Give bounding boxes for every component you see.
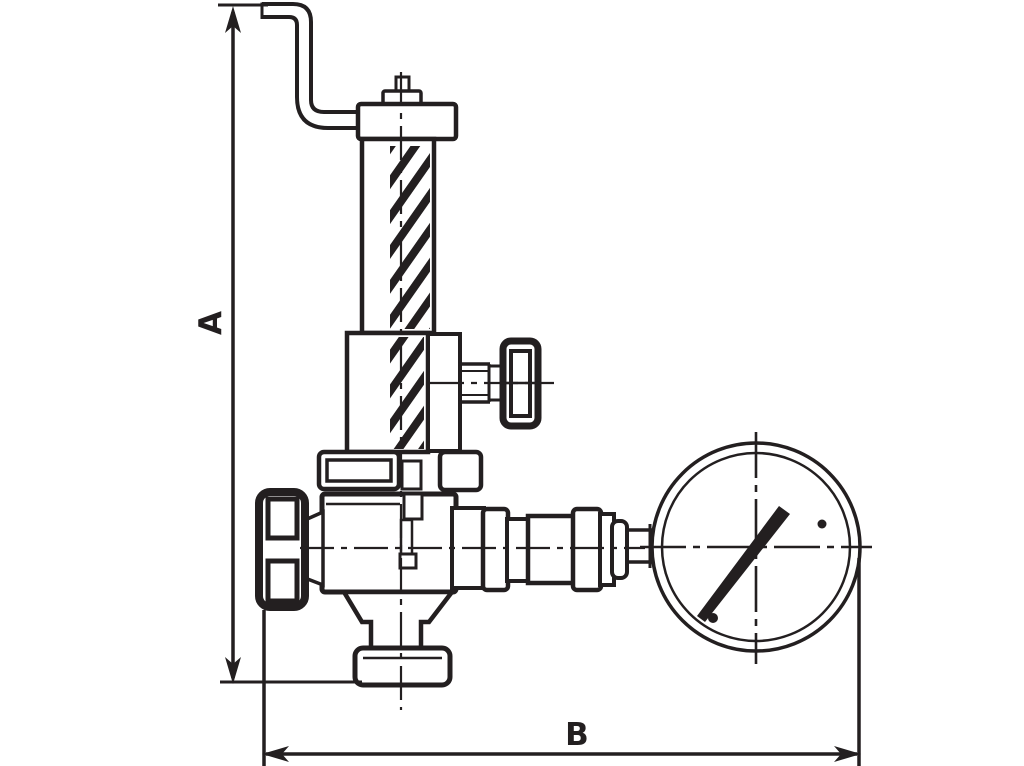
gauge-dial-dot-left bbox=[708, 613, 718, 623]
gauge-dial-dot-right bbox=[818, 520, 827, 529]
flange-right-nut bbox=[440, 452, 481, 490]
union-nut-2 bbox=[573, 509, 601, 590]
gauge-isolator-valve bbox=[428, 334, 538, 451]
isolator-housing bbox=[428, 334, 460, 451]
cap-body bbox=[358, 104, 456, 139]
spring-lower bbox=[390, 337, 424, 449]
bottom-flange bbox=[355, 648, 450, 685]
pipe-wall-outer bbox=[262, 4, 364, 112]
valve-block bbox=[528, 516, 574, 583]
dimension-b-label: B bbox=[565, 717, 589, 753]
body-shell bbox=[322, 494, 456, 592]
drain-pipe bbox=[262, 3, 364, 129]
adjusting-cap bbox=[358, 77, 456, 139]
tube-piece bbox=[507, 519, 529, 581]
flange-channel bbox=[402, 461, 421, 489]
body-slot bbox=[404, 494, 422, 519]
drawing-canvas: A B bbox=[0, 0, 1024, 766]
dimension-a-label: A bbox=[193, 311, 229, 335]
pressure-gauge bbox=[640, 432, 872, 664]
bottom-flange-assembly bbox=[344, 592, 452, 685]
spring bbox=[390, 146, 430, 329]
inlet-handwheel bbox=[259, 492, 305, 607]
technical-drawing: A B bbox=[0, 0, 1024, 766]
end-cap bbox=[612, 521, 627, 578]
bottom-cone bbox=[344, 592, 452, 648]
body-seat bbox=[400, 554, 416, 568]
union-nut-1 bbox=[483, 509, 508, 590]
flange-left bbox=[319, 452, 399, 489]
spring-bonnet bbox=[347, 139, 434, 452]
